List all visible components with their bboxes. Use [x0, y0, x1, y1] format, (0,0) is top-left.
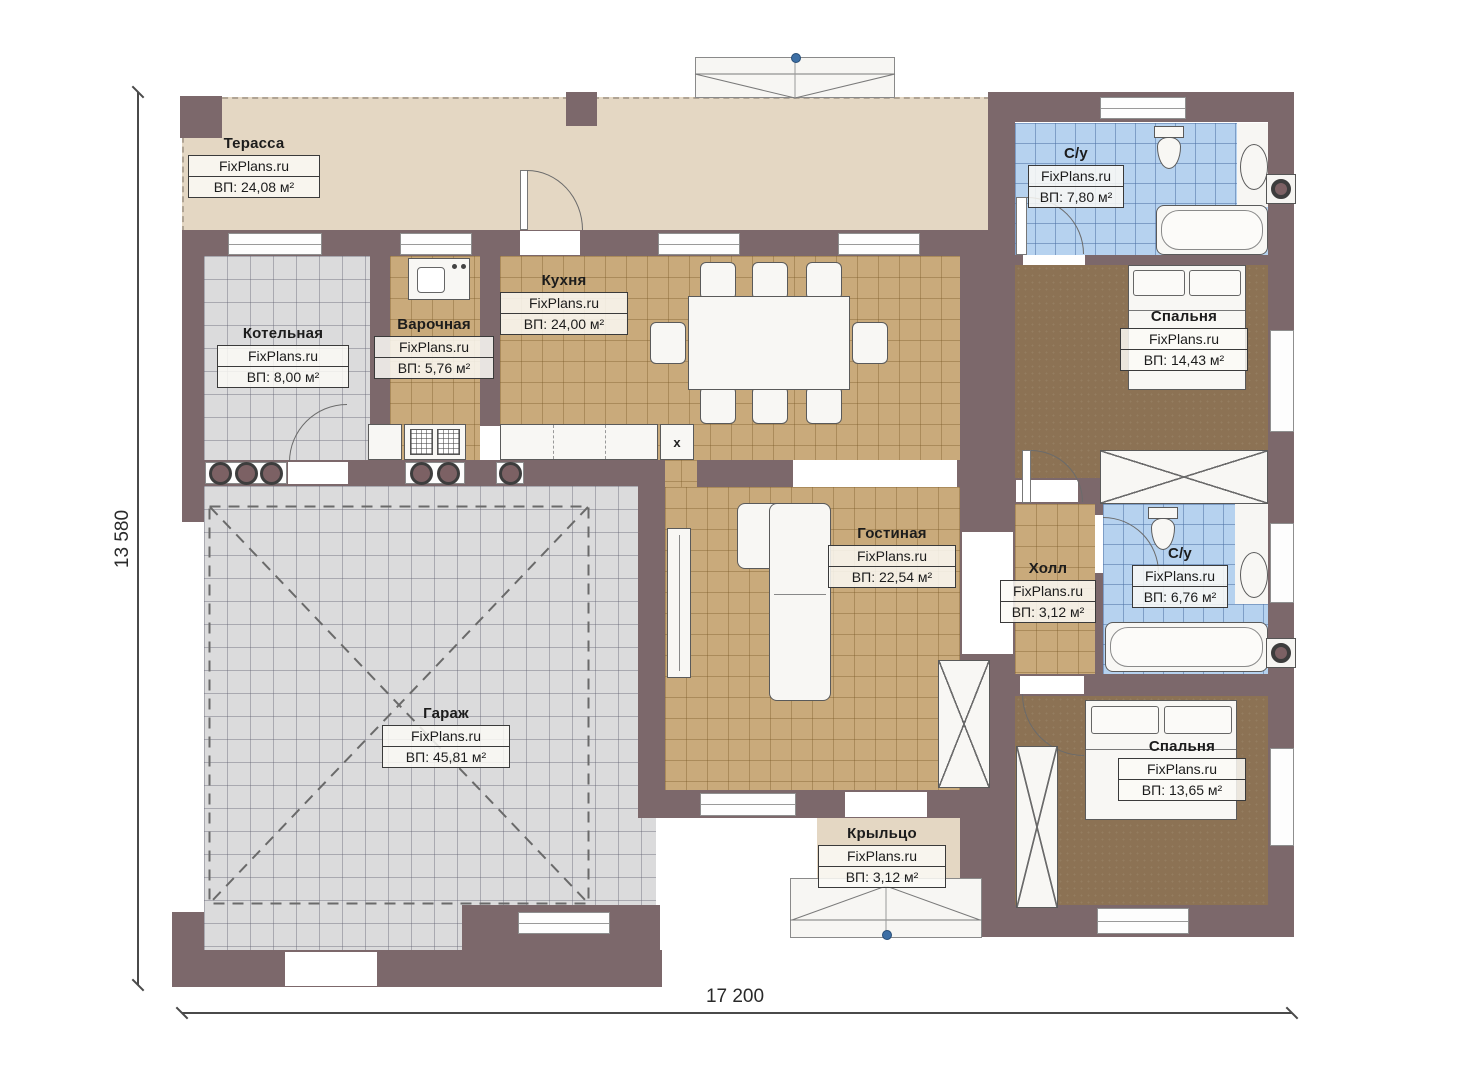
sink — [1240, 144, 1268, 190]
brand-text: FixPlans.ru — [1029, 166, 1123, 187]
terrace-stairs — [695, 57, 895, 98]
wardrobe — [938, 660, 990, 788]
window-living-bottom — [700, 793, 796, 816]
window-bath-top — [1100, 97, 1186, 119]
bathtub — [1105, 622, 1268, 672]
room-area: ВП: 14,43 м² — [1121, 350, 1247, 370]
room-label-bath-top: С/у FixPlans.ru ВП: 7,80 м² — [1028, 145, 1124, 208]
window-kitchen-sink — [400, 233, 472, 255]
brand-text: FixPlans.ru — [383, 726, 509, 747]
wardrobe — [1100, 450, 1268, 504]
brand-text: FixPlans.ru — [375, 337, 493, 358]
brand-text: FixPlans.ru — [1119, 759, 1245, 780]
door-gap-boiler — [288, 462, 348, 484]
door-gap-terrace — [520, 231, 580, 255]
kitchen-counter — [500, 424, 658, 460]
window-bath-mid — [1270, 523, 1294, 603]
chair — [806, 386, 842, 424]
room-name: С/у — [1132, 545, 1228, 562]
wall-garage-living — [638, 460, 665, 817]
chair — [752, 262, 788, 300]
room-area: ВП: 5,76 м² — [375, 358, 493, 378]
brand-text: FixPlans.ru — [1133, 566, 1227, 587]
counter-small — [368, 424, 402, 460]
kitchen-living-opening — [660, 460, 697, 488]
room-name: Крыльцо — [818, 825, 946, 842]
pillow — [1133, 270, 1185, 296]
counter-x-mark: x — [673, 435, 680, 450]
room-area: ВП: 24,08 м² — [189, 177, 319, 197]
wall-kitchen-living-a — [697, 460, 793, 487]
room-area: ВП: 24,00 м² — [501, 314, 627, 334]
room-name: Гостиная — [828, 525, 956, 542]
dimension-line-left — [137, 92, 139, 985]
room-label-cooking: Варочная FixPlans.ru ВП: 5,76 м² — [374, 316, 494, 379]
burner-icon — [410, 429, 433, 455]
room-name: С/у — [1028, 145, 1124, 162]
chair — [806, 262, 842, 300]
room-name: Варочная — [374, 316, 494, 333]
room-label-kitchen: Кухня FixPlans.ru ВП: 24,00 м² — [500, 272, 628, 335]
window-boiler — [228, 233, 322, 255]
terrace-post-left — [180, 96, 222, 138]
room-name: Гараж — [382, 705, 510, 722]
window-kitchen-2 — [838, 233, 920, 255]
tv-stand — [667, 528, 691, 678]
brand-text: FixPlans.ru — [218, 346, 348, 367]
room-label-boiler: Котельная FixPlans.ru ВП: 8,00 м² — [217, 325, 349, 388]
room-area: ВП: 6,76 м² — [1133, 587, 1227, 607]
bathtub-inner — [1161, 210, 1263, 250]
chair — [752, 386, 788, 424]
brand-text: FixPlans.ru — [1121, 329, 1247, 350]
chair — [700, 386, 736, 424]
room-name: Холл — [1000, 560, 1096, 577]
room-name: Спальня — [1120, 308, 1248, 325]
brand-text: FixPlans.ru — [189, 156, 319, 177]
window-garage-step — [518, 912, 610, 934]
washing-machine-icon — [1266, 638, 1296, 668]
vent-circles-icon — [496, 462, 524, 484]
wall-garage-bottom — [182, 950, 662, 987]
sink — [1240, 552, 1268, 598]
terrace-post-mid — [566, 92, 597, 126]
dimension-label-width: 17 200 — [660, 986, 810, 1008]
pillow — [1189, 270, 1241, 296]
door-gap-garage — [285, 952, 377, 986]
dining-table — [688, 296, 850, 390]
stove — [404, 424, 466, 460]
dimension-line-bottom — [182, 1012, 1292, 1014]
wall-living-bottom — [638, 790, 990, 818]
room-area: ВП: 8,00 м² — [218, 367, 348, 387]
room-area: ВП: 22,54 м² — [829, 567, 955, 587]
brand-text: FixPlans.ru — [829, 546, 955, 567]
door-leaf — [1022, 450, 1031, 503]
door-leaf — [1016, 197, 1027, 255]
bathtub — [1156, 205, 1268, 255]
room-label-terrace: Терасса FixPlans.ru ВП: 24,08 м² — [188, 135, 320, 198]
room-name: Спальня — [1118, 738, 1246, 755]
window-bedroom-bottom-right — [1270, 748, 1294, 846]
window-kitchen-1 — [658, 233, 740, 255]
chair — [852, 322, 888, 364]
room-label-bath-mid: С/у FixPlans.ru ВП: 6,76 м² — [1132, 545, 1228, 608]
vent-circles-icon — [405, 462, 465, 484]
window-bedroom-top — [1270, 330, 1294, 432]
burner-icon — [437, 429, 460, 455]
brand-text: FixPlans.ru — [819, 846, 945, 867]
door-gap-bath-mid — [1095, 515, 1103, 573]
sofa-body — [769, 503, 831, 701]
door-gap-bedroom-bottom — [1020, 676, 1084, 694]
floor-plan: x — [0, 0, 1474, 1080]
window-bedroom-bottom — [1097, 908, 1189, 934]
wardrobe — [1016, 746, 1058, 908]
entry-marker-dot — [791, 53, 801, 63]
dimension-label-height: 13 580 — [112, 484, 134, 594]
room-area: ВП: 7,80 м² — [1029, 187, 1123, 207]
room-area: ВП: 3,12 м² — [819, 867, 945, 887]
washing-machine-icon — [1266, 174, 1296, 204]
room-area: ВП: 13,65 м² — [1119, 780, 1245, 800]
bathtub-inner — [1110, 627, 1263, 667]
room-label-garage: Гараж FixPlans.ru ВП: 45,81 м² — [382, 705, 510, 768]
kitchen-sink-unit — [408, 258, 470, 300]
room-area: ВП: 3,12 м² — [1001, 602, 1095, 622]
vent-circles-icon — [205, 462, 287, 484]
entry-marker-dot — [882, 930, 892, 940]
brand-text: FixPlans.ru — [1001, 581, 1095, 602]
chair — [650, 322, 686, 364]
room-name: Кухня — [500, 272, 628, 289]
room-label-living: Гостиная FixPlans.ru ВП: 22,54 м² — [828, 525, 956, 588]
door-gap-bath-top — [1023, 255, 1085, 265]
brand-text: FixPlans.ru — [501, 293, 627, 314]
counter-x-box: x — [660, 424, 694, 460]
room-label-hall: Холл FixPlans.ru ВП: 3,12 м² — [1000, 560, 1096, 623]
room-area: ВП: 45,81 м² — [383, 747, 509, 767]
room-name: Терасса — [188, 135, 320, 152]
chair — [700, 262, 736, 300]
room-label-porch: Крыльцо FixPlans.ru ВП: 3,12 м² — [818, 825, 946, 888]
room-label-bedroom-bottom: Спальня FixPlans.ru ВП: 13,65 м² — [1118, 738, 1246, 801]
door-gap-porch — [845, 792, 927, 817]
room-label-bedroom-top: Спальня FixPlans.ru ВП: 14,43 м² — [1120, 308, 1248, 371]
pillow — [1164, 706, 1232, 734]
room-name: Котельная — [217, 325, 349, 342]
pillow — [1091, 706, 1159, 734]
